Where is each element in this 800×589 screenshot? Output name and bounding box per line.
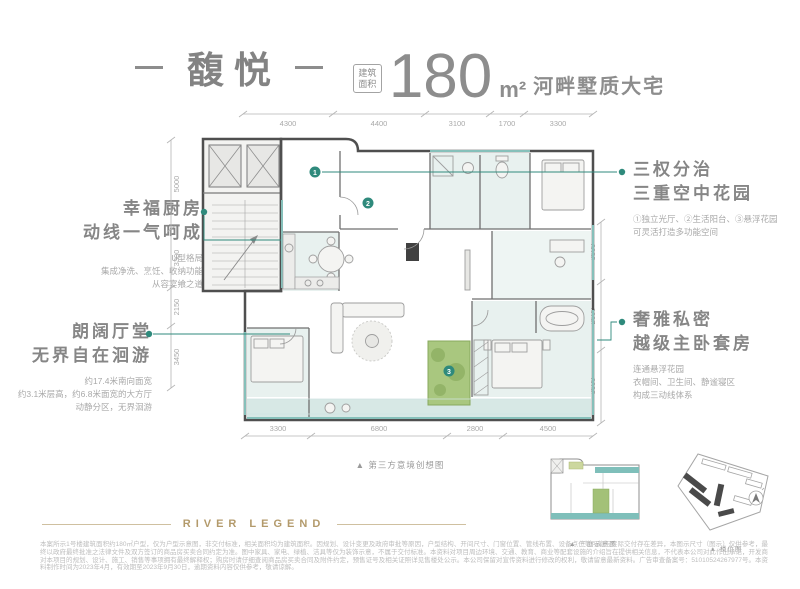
area-badge: 建筑 面积 (353, 64, 382, 93)
marker-2: 2 (366, 201, 370, 208)
brand-name: RIVER LEGEND (183, 518, 326, 530)
site-plan: ▲ 楼位图 (668, 450, 784, 553)
garden-patch (593, 489, 609, 513)
leader-dot (201, 209, 207, 215)
desk (550, 240, 584, 252)
dim-label: 3450 (172, 349, 181, 366)
area-number: 180 (389, 52, 492, 102)
balcony-band (595, 467, 639, 473)
header: 馥悦 建筑 面积 180 m² 河畔墅质大宅 (0, 40, 800, 102)
brand-band: RIVER LEGEND (42, 518, 466, 530)
shaft-column (406, 243, 419, 261)
dim-label: 4400 (371, 119, 388, 128)
title-dash-right (295, 66, 323, 69)
dim-label: 4500 (540, 424, 557, 433)
dim-label: 4300 (280, 119, 297, 128)
badge-line-1: 建筑 (358, 68, 376, 79)
brand-rule-right (337, 524, 466, 525)
site-plan-svg (668, 450, 784, 536)
disclaimer-text: 本案所示1号楼建筑面积约180㎡户型，仅为户型示意图，非交付标准，相关面积均为建… (40, 541, 768, 572)
marker-1: 1 (313, 170, 317, 177)
marker-3: 3 (447, 369, 451, 376)
badge-line-2: 面积 (358, 79, 376, 90)
balcony-band (551, 513, 639, 519)
tv-cabinet (465, 250, 470, 290)
core-block (203, 139, 281, 291)
leader-dot (146, 331, 152, 337)
mini-keyplan-svg (543, 453, 643, 531)
floor-plan: 4300 4400 3100 1700 3300 3300 6800 2800 … (0, 100, 800, 452)
area-block: 建筑 面积 180 m² 河畔墅质大宅 (353, 52, 665, 102)
dim-label: 6800 (371, 424, 388, 433)
dim-label: 5000 (172, 176, 181, 193)
title-block: 馥悦 (135, 40, 323, 102)
leader-dot (619, 319, 625, 325)
dining-table (318, 246, 344, 272)
dim-label: 3300 (550, 119, 567, 128)
toilet (496, 162, 508, 178)
sofa (342, 303, 404, 317)
page-title: 馥悦 (177, 40, 281, 94)
title-dash-left (135, 66, 163, 69)
tagline: 河畔墅质大宅 (533, 70, 665, 99)
dim-label: 2150 (172, 299, 181, 316)
dim-label: 3300 (270, 424, 287, 433)
flyer-page: 馥悦 建筑 面积 180 m² 河畔墅质大宅 幸福厨房 动线一气呵成 U型格局 … (0, 0, 800, 589)
leader-dot (619, 169, 625, 175)
bathtub (540, 306, 584, 331)
dim-label: 3300 (172, 250, 181, 267)
area-unit: m² (499, 79, 526, 101)
dim-label: 3100 (449, 119, 466, 128)
dim-label: 1700 (499, 119, 516, 128)
kitchen-counter (283, 234, 295, 289)
brand-rule-left (42, 524, 171, 525)
dim-label: 2800 (467, 424, 484, 433)
mini-keyplan: ▲ 三庭示意图 (543, 453, 643, 548)
